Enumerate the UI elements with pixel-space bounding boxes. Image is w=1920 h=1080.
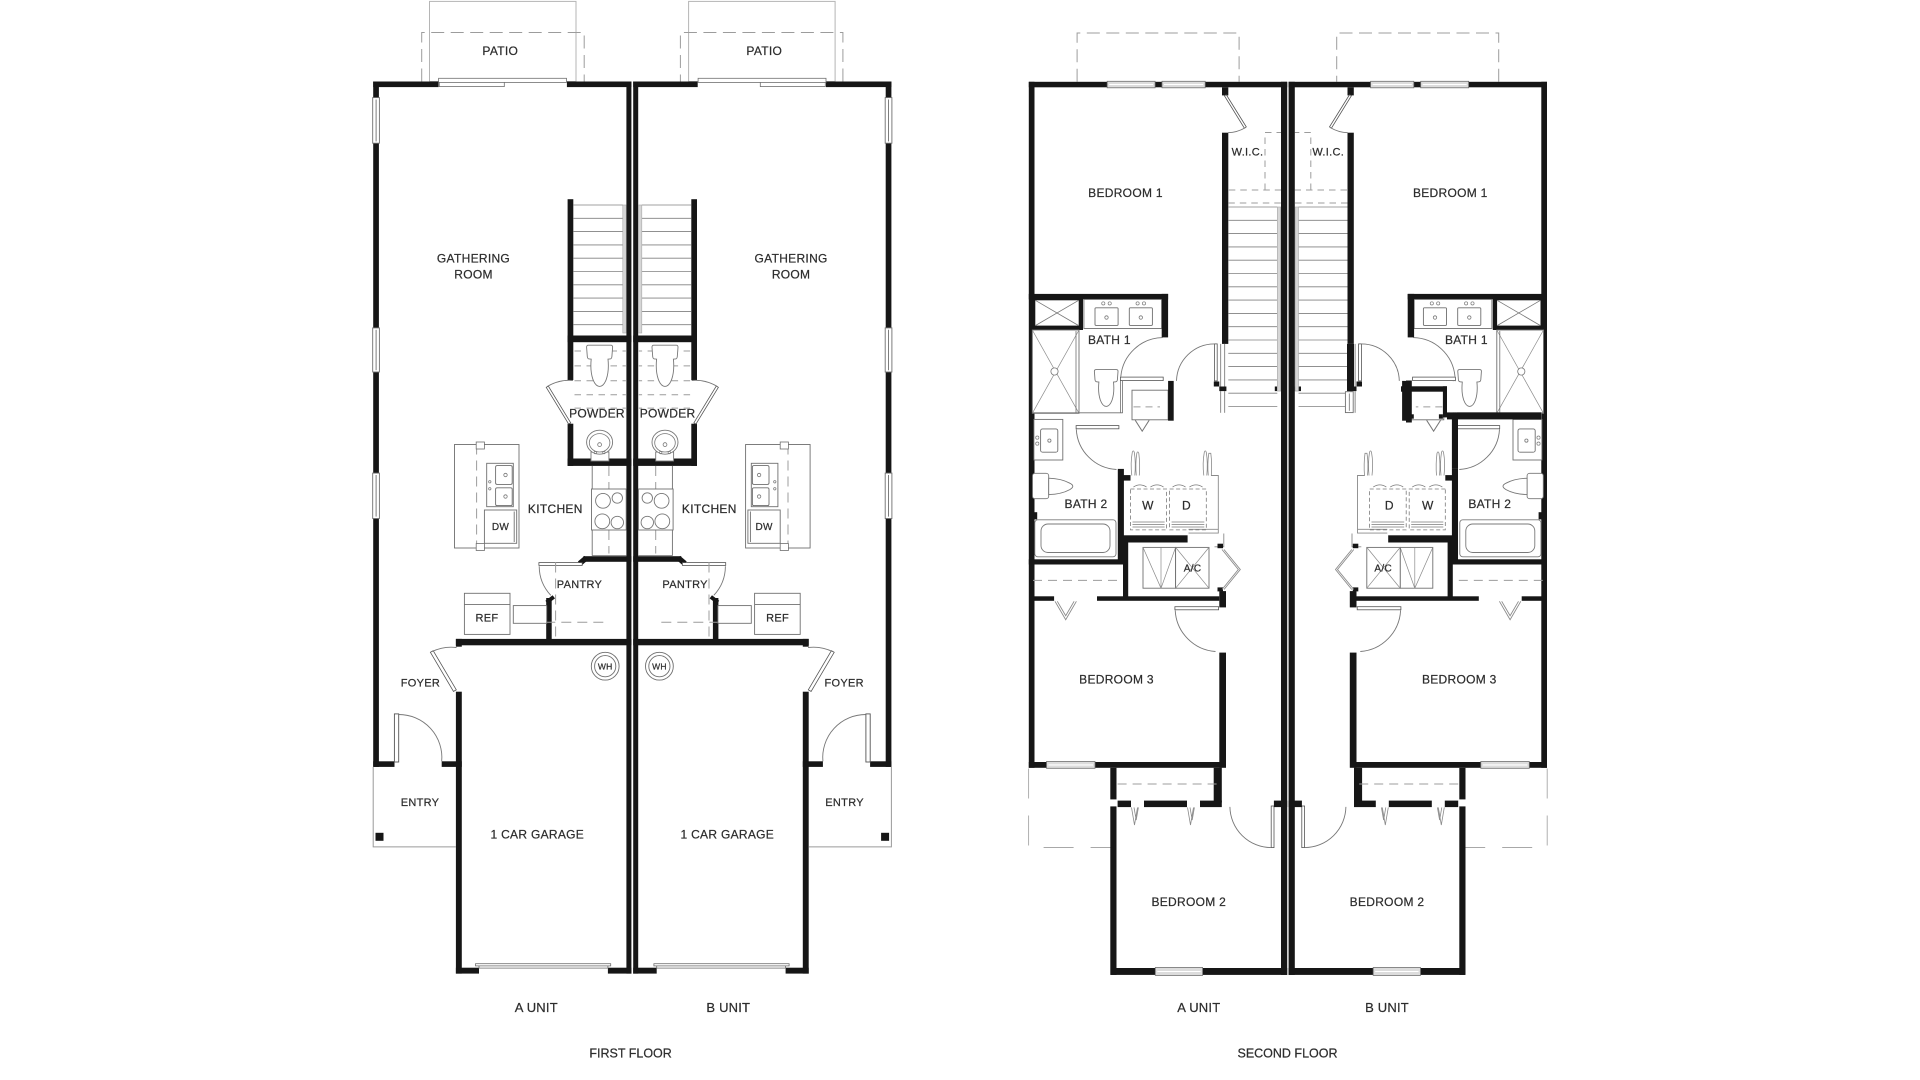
svg-text:B UNIT: B UNIT <box>706 1000 750 1015</box>
svg-text:W: W <box>1142 499 1154 513</box>
svg-text:ENTRY: ENTRY <box>401 797 440 809</box>
svg-text:A/C: A/C <box>1184 564 1202 575</box>
svg-text:BATH 1: BATH 1 <box>1445 333 1488 347</box>
svg-text:WH: WH <box>598 661 613 671</box>
svg-text:D: D <box>1385 499 1394 513</box>
svg-text:DW: DW <box>492 522 510 533</box>
svg-text:PATIO: PATIO <box>482 44 518 58</box>
svg-text:POWDER: POWDER <box>569 407 625 421</box>
svg-text:A/C: A/C <box>1374 564 1392 575</box>
svg-text:ENTRY: ENTRY <box>825 797 864 809</box>
svg-text:PANTRY: PANTRY <box>557 579 603 591</box>
svg-text:KITCHEN: KITCHEN <box>682 502 737 516</box>
svg-text:FIRST FLOOR: FIRST FLOOR <box>589 1047 671 1061</box>
svg-text:W: W <box>1422 499 1434 513</box>
svg-text:1 CAR GARAGE: 1 CAR GARAGE <box>490 828 584 842</box>
svg-text:REF: REF <box>766 613 789 625</box>
svg-text:PATIO: PATIO <box>746 44 782 58</box>
svg-text:BEDROOM 2: BEDROOM 2 <box>1151 895 1226 909</box>
svg-text:WH: WH <box>652 661 667 671</box>
svg-text:PANTRY: PANTRY <box>662 579 708 591</box>
svg-text:FOYER: FOYER <box>401 678 440 690</box>
svg-text:KITCHEN: KITCHEN <box>528 502 583 516</box>
svg-text:ROOM: ROOM <box>454 268 493 282</box>
svg-text:D: D <box>1182 499 1191 513</box>
svg-text:BEDROOM 1: BEDROOM 1 <box>1088 186 1163 200</box>
svg-text:W.I.C.: W.I.C. <box>1232 147 1264 159</box>
svg-text:REF: REF <box>476 613 499 625</box>
svg-text:ROOM: ROOM <box>772 268 811 282</box>
svg-text:DW: DW <box>755 522 773 533</box>
svg-text:A UNIT: A UNIT <box>515 1000 558 1015</box>
svg-text:FOYER: FOYER <box>824 678 863 690</box>
svg-text:BEDROOM 1: BEDROOM 1 <box>1413 186 1488 200</box>
svg-text:GATHERING: GATHERING <box>755 252 828 266</box>
svg-text:BEDROOM 3: BEDROOM 3 <box>1079 673 1154 687</box>
svg-text:A UNIT: A UNIT <box>1177 1000 1220 1015</box>
svg-text:W.I.C.: W.I.C. <box>1312 147 1344 159</box>
svg-text:B UNIT: B UNIT <box>1365 1000 1409 1015</box>
svg-text:POWDER: POWDER <box>640 407 696 421</box>
svg-text:BATH 2: BATH 2 <box>1065 497 1108 511</box>
svg-text:BEDROOM 2: BEDROOM 2 <box>1350 895 1425 909</box>
svg-text:SECOND FLOOR: SECOND FLOOR <box>1237 1047 1337 1061</box>
svg-text:BEDROOM 3: BEDROOM 3 <box>1422 673 1497 687</box>
svg-text:GATHERING: GATHERING <box>437 252 510 266</box>
svg-text:BATH 2: BATH 2 <box>1468 497 1511 511</box>
svg-text:BATH 1: BATH 1 <box>1088 333 1131 347</box>
svg-text:1 CAR GARAGE: 1 CAR GARAGE <box>680 828 774 842</box>
